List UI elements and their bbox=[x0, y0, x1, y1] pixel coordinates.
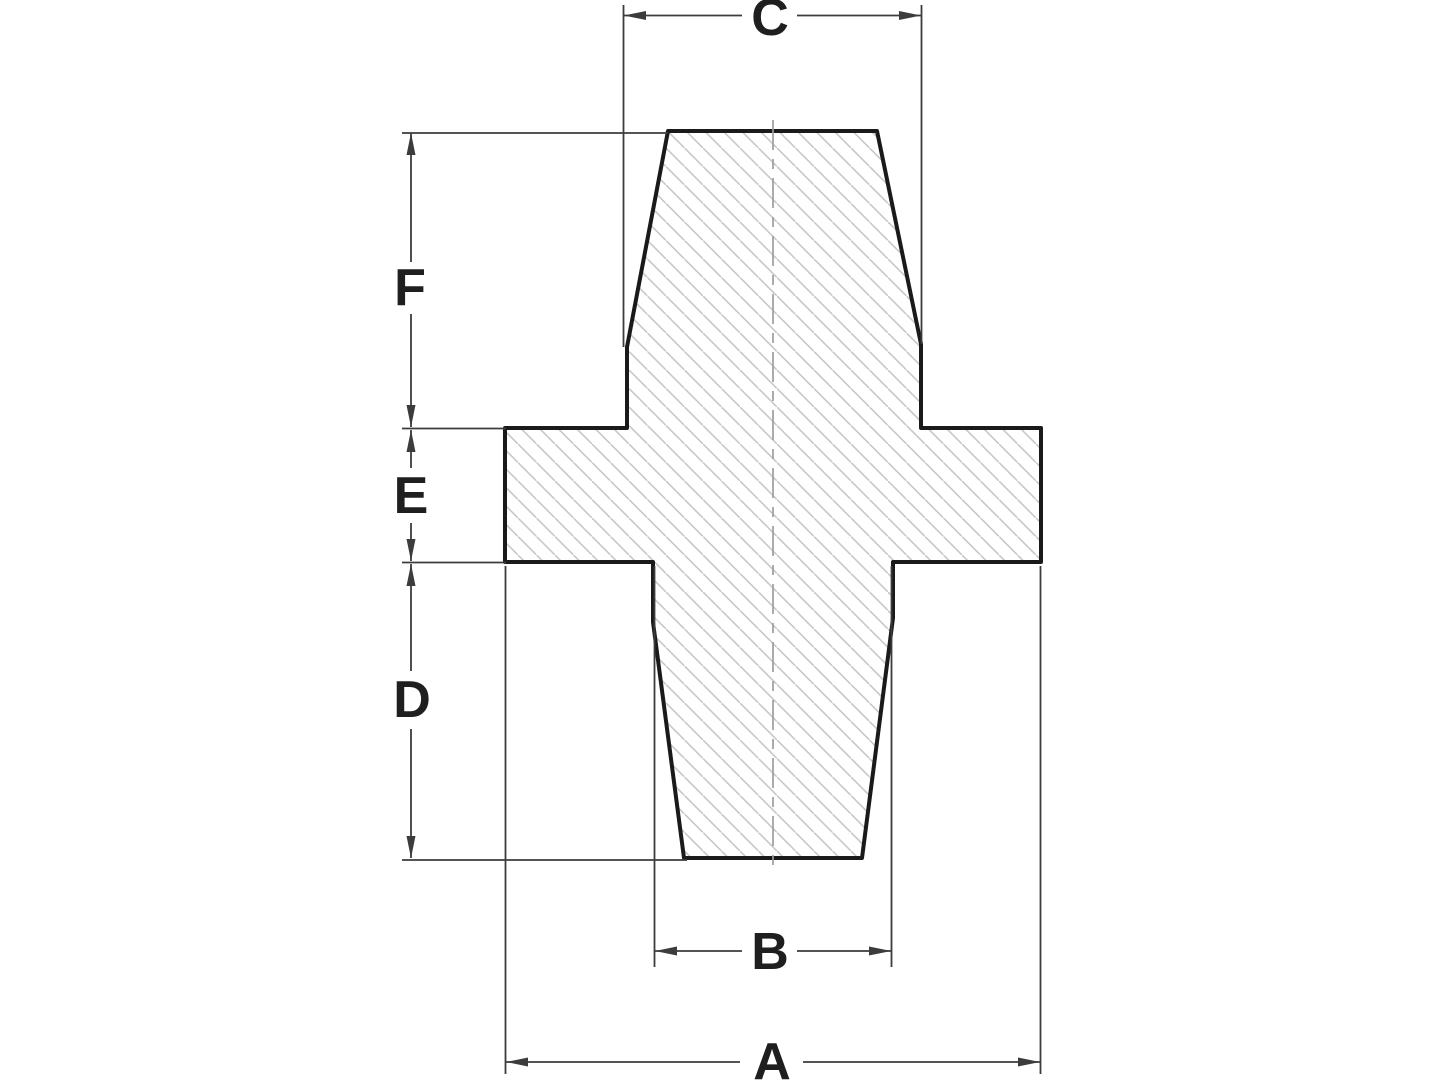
dim-label-b: B bbox=[751, 923, 789, 981]
arrowhead-b-left bbox=[655, 947, 677, 956]
dim-label-e: E bbox=[394, 467, 429, 525]
dim-label-f: F bbox=[394, 259, 426, 317]
dim-label-c: C bbox=[751, 0, 789, 47]
arrowhead-e-top bbox=[407, 430, 416, 452]
arrowhead-b-right bbox=[869, 947, 891, 956]
arrowhead-e-bottom bbox=[407, 539, 416, 561]
dim-label-a: A bbox=[753, 1033, 791, 1080]
arrowhead-a-left bbox=[506, 1058, 528, 1067]
arrowhead-f-top bbox=[407, 133, 416, 155]
arrowhead-a-right bbox=[1018, 1058, 1040, 1067]
drawing-canvas: C F E D bbox=[0, 0, 1440, 1080]
arrowhead-d-bottom bbox=[407, 836, 416, 858]
arrowhead-d-top bbox=[407, 564, 416, 586]
arrowhead-c-left bbox=[624, 11, 646, 20]
dim-label-d: D bbox=[393, 671, 431, 729]
technical-drawing: C F E D bbox=[0, 0, 1440, 1080]
dimension-e: E bbox=[394, 430, 506, 563]
dimension-d: D bbox=[393, 564, 687, 860]
arrowhead-c-right bbox=[899, 11, 921, 20]
arrowhead-f-bottom bbox=[407, 405, 416, 427]
